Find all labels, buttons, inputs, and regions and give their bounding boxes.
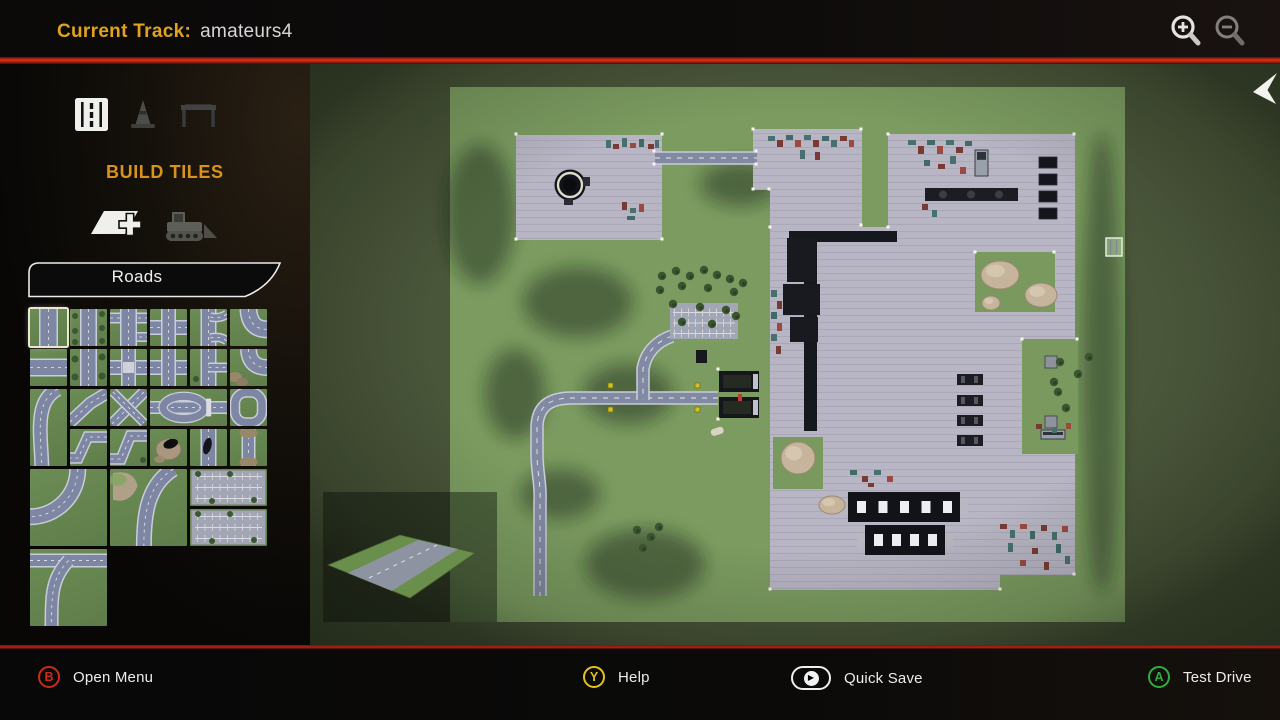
tile-grid [30,309,267,626]
cone-props-icon[interactable] [125,96,161,137]
controller-button-y: Y [583,666,605,688]
current-track-value: amateurs4 [200,21,292,42]
tile-large-curve-rock[interactable] [110,469,187,546]
tile-roundabout[interactable] [230,389,267,426]
red-divider-top [0,57,1280,64]
hint-label: Help [618,669,650,686]
road-tiles-icon[interactable] [74,97,109,137]
tile-oval-median[interactable] [150,389,227,426]
track-map-canvas[interactable] [310,64,1280,645]
tile-crossroad-2[interactable] [150,349,187,386]
add-tile-icon[interactable] [88,202,154,253]
play-glyph: ▶ [804,671,819,686]
track-map-viewport[interactable] [310,64,1280,645]
controller-hint-bar: BOpen MenuYHelp▶Quick SaveATest Drive [0,649,1280,720]
tile-parking-lot-2[interactable] [190,509,267,546]
tile-straight-road[interactable] [30,309,67,346]
section-title: BUILD TILES [106,162,224,183]
tile-side-branch[interactable] [190,349,227,386]
tile-large-curve[interactable] [30,469,107,546]
zoom-in-button[interactable] [1168,13,1206,53]
mouse-cursor [1252,70,1280,113]
prop-mode-tabs [74,96,219,137]
zoom-in-icon [1168,40,1206,57]
tile-curve[interactable] [230,309,267,346]
bulldozer-icon[interactable] [162,204,222,253]
hint-help[interactable]: YHelp [583,666,650,688]
menu-button-icon: ▶ [791,666,831,690]
tile-crossroad[interactable] [150,309,187,346]
tile-diagonal-cross[interactable] [110,389,147,426]
tile-parking-lot[interactable] [190,469,267,506]
tile-straight-road-trees-2[interactable] [70,349,107,386]
tile-diagonal[interactable] [70,389,107,426]
category-tab-label: Roads [16,267,258,287]
tile-crossroad-crosswalk[interactable] [110,349,147,386]
tile-side-junctions[interactable] [110,309,147,346]
tile-road-dirt[interactable] [230,429,267,466]
hint-label: Quick Save [844,670,923,687]
tile-zigzag[interactable] [70,429,107,466]
tile-rock-cave[interactable] [150,429,187,466]
current-track-title: Current Track:amateurs4 [57,21,293,43]
zoom-out-icon [1212,40,1250,57]
hint-open-menu[interactable]: BOpen Menu [38,666,153,688]
tile-long-sweep[interactable] [30,389,67,466]
tile-straight-road-h[interactable] [30,349,67,386]
hint-label: Open Menu [73,669,153,686]
top-bar: Current Track:amateurs4 [0,0,1280,57]
tile-tool-tabs [88,202,222,253]
gate-props-icon[interactable] [177,97,219,136]
controller-button-b: B [38,666,60,688]
tile-curve-dirt[interactable] [230,349,267,386]
tile-double-curve[interactable] [190,309,227,346]
build-sidebar: BUILD TILES [0,64,310,645]
current-track-label: Current Track: [57,21,191,42]
hint-test-drive[interactable]: ATest Drive [1148,666,1252,688]
zoom-out-button[interactable] [1212,13,1250,53]
tile-straight-road-trees[interactable] [70,309,107,346]
hint-quick-save[interactable]: ▶Quick Save [791,666,923,690]
hint-label: Test Drive [1183,669,1252,686]
controller-button-a: A [1148,666,1170,688]
tile-road-blotch[interactable] [190,429,227,466]
tile-zigzag-2[interactable] [110,429,147,466]
tile-junction-curve[interactable] [30,549,107,626]
